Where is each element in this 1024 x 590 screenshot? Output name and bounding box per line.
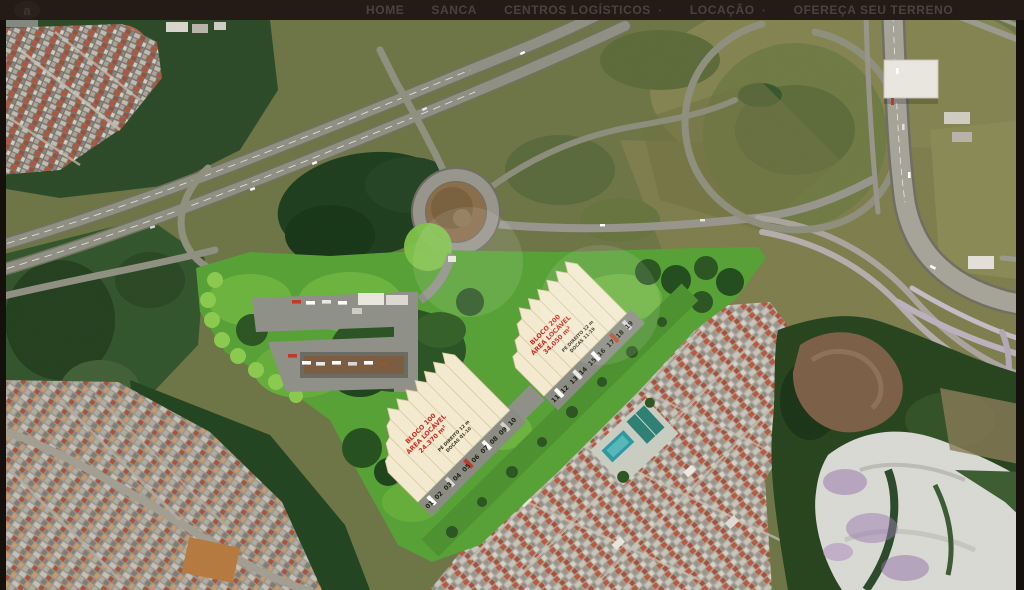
page: a HOME SANCA CENTROS LOGÍSTICOS · LOCAÇÃ… bbox=[0, 0, 1024, 590]
dropdown-indicator-icon: · bbox=[762, 3, 767, 18]
nav-menu: HOME SANCA CENTROS LOGÍSTICOS · LOCAÇÃO … bbox=[0, 3, 953, 18]
nav-item-centros-logisticos[interactable]: CENTROS LOGÍSTICOS · bbox=[504, 3, 663, 18]
nav-item-home[interactable]: HOME bbox=[366, 3, 404, 17]
dropdown-indicator-icon: · bbox=[658, 3, 663, 18]
nav-item-home-label: HOME bbox=[366, 3, 404, 17]
nav-item-locacao-label: LOCAÇÃO bbox=[690, 3, 755, 17]
aerial-masterplan-image: BLOCO 100 ÁREA LOCÁVEL 24.370 m² PÉ DIRE… bbox=[0, 20, 1024, 590]
nav-item-centros-label: CENTROS LOGÍSTICOS bbox=[504, 3, 651, 17]
image-noise bbox=[0, 20, 1024, 590]
nav-item-ofereca-terreno[interactable]: OFEREÇA SEU TERRENO bbox=[794, 3, 954, 17]
nav-item-sanca-label: SANCA bbox=[431, 3, 477, 17]
brand-logo-icon[interactable]: a bbox=[14, 1, 40, 19]
nav-item-ofereca-label: OFEREÇA SEU TERRENO bbox=[794, 3, 954, 17]
right-edge-strip bbox=[1016, 0, 1024, 590]
left-edge-strip bbox=[0, 0, 6, 590]
nav-item-sanca[interactable]: SANCA bbox=[431, 3, 477, 17]
top-navigation-bar: a HOME SANCA CENTROS LOGÍSTICOS · LOCAÇÃ… bbox=[0, 0, 1024, 20]
nav-item-locacao[interactable]: LOCAÇÃO · bbox=[690, 3, 767, 18]
